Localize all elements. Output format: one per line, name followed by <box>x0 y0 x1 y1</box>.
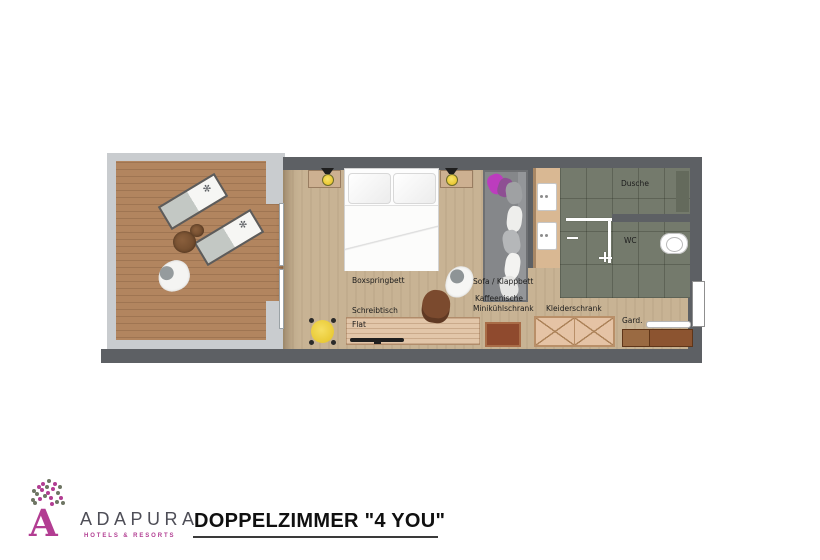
toilet <box>660 233 688 254</box>
wardrobe-door <box>536 318 574 345</box>
glass-tick <box>567 237 578 239</box>
stool <box>311 320 334 343</box>
room-title: DOPPELZIMMER "4 YOU" <box>194 510 445 533</box>
wardrobe <box>534 316 615 347</box>
terrace-door-glass <box>279 269 284 329</box>
flower-icon: ✻ <box>238 219 250 232</box>
shower-glass-panel <box>566 218 612 221</box>
minibar-cabinet <box>485 322 521 347</box>
label-wc: WC <box>624 236 637 245</box>
entry-door <box>692 281 705 327</box>
label-schreibtisch: Schreibtisch <box>352 306 398 315</box>
label-garderobe: Gard. <box>622 316 643 325</box>
pillow <box>393 173 436 204</box>
duvet <box>345 205 438 271</box>
title-underline <box>193 536 438 538</box>
vanity-counter <box>533 168 560 268</box>
pillow-white <box>506 205 524 232</box>
boxspring-bed <box>344 168 439 271</box>
brand-tagline: HOTELS & RESORTS <box>84 533 175 539</box>
label-dusche: Dusche <box>621 179 649 188</box>
label-minikuehlschrank: Minikühlschrank <box>473 304 534 313</box>
shower-niche <box>676 171 689 212</box>
plant-icon <box>190 224 204 237</box>
label-sofa-klappbett: Sofa / Klappbett <box>473 277 533 286</box>
sink <box>537 222 557 250</box>
sink <box>537 183 557 211</box>
tv-flatscreen <box>350 338 404 342</box>
label-kaffeenische: Kaffeenische <box>475 294 523 303</box>
label-flat: Flat <box>352 320 366 329</box>
terrace-door-glass <box>279 203 284 266</box>
pillow-gray <box>505 181 524 205</box>
coat-bench <box>622 329 693 347</box>
label-kleiderschrank: Kleiderschrank <box>546 304 602 313</box>
lamp-icon <box>446 174 458 186</box>
lamp-icon <box>322 174 334 186</box>
shower-fixture-icon <box>604 252 606 262</box>
wall-wc-divider <box>612 214 690 222</box>
terrace-parapet-top <box>107 153 285 161</box>
pillow <box>348 173 391 204</box>
floorplan-page: ✻ ✻ <box>0 0 820 560</box>
pillow-gray <box>501 229 522 256</box>
tree-trunk-icon: A <box>29 505 58 542</box>
wardrobe-door <box>574 318 613 345</box>
wall-bottom <box>101 349 702 363</box>
wall-stub-top <box>266 157 283 204</box>
coat-rail <box>646 321 691 328</box>
brand-name: ADAPURA <box>80 509 199 530</box>
flower-icon: ✻ <box>202 183 214 196</box>
label-boxspringbett: Boxspringbett <box>352 276 405 285</box>
terrace-parapet-left <box>107 153 116 350</box>
